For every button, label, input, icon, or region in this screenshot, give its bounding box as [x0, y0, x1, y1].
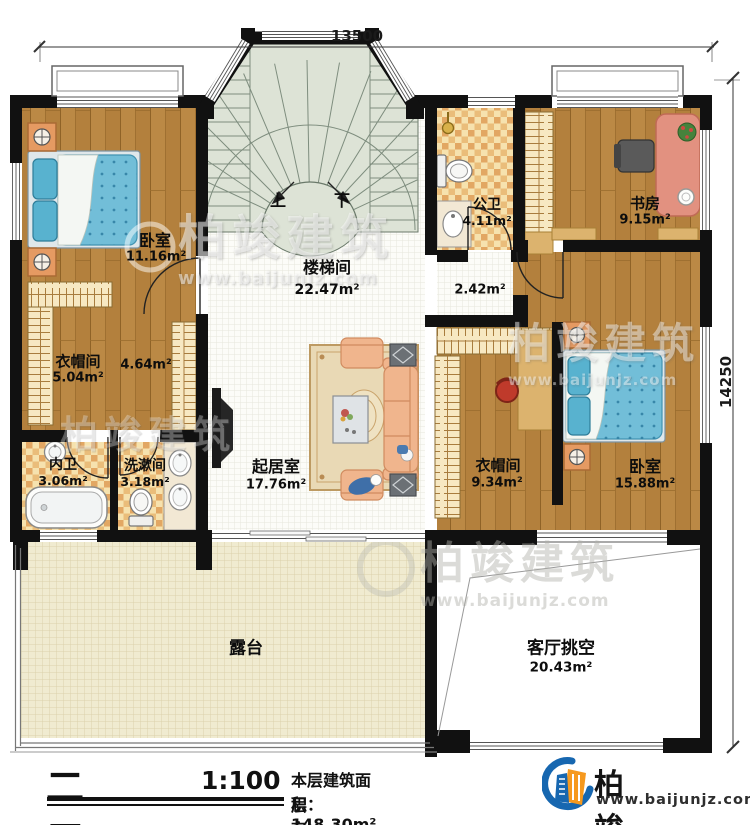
room-label-bath-inner: 内卫 [49, 458, 77, 472]
dimension-right: 14250 [717, 356, 735, 408]
sliding-door [212, 530, 425, 542]
room-area-washroom: 3.18m² [120, 476, 169, 489]
page-title: 二层平面图 [46, 756, 87, 825]
toilet-icon [129, 489, 153, 526]
bed-left [28, 151, 140, 248]
brand-website: www.baijunjz.com [596, 792, 750, 808]
room-area-study: 9.15m² [619, 214, 670, 227]
room-label-bedroom-right: 卧室 [629, 459, 661, 475]
room-area-cloak-left: 5.04m² [52, 372, 103, 385]
room-label-living: 起居室 [252, 459, 300, 475]
room-area-cloak-left2: 4.64m² [120, 359, 171, 372]
title-underline [47, 797, 284, 801]
room-area-living: 17.76m² [246, 479, 306, 492]
room-area-bath-inner: 3.06m² [38, 475, 87, 488]
room-area-cloak-right: 9.34m² [471, 477, 522, 490]
bathtub-icon [26, 487, 107, 528]
room-label-cloak-left: 衣帽间 [55, 355, 100, 370]
bay-window [552, 66, 683, 108]
bay-window [52, 66, 183, 108]
drawing-scale: 1:100 [201, 766, 281, 795]
floorplan-drawing [0, 0, 750, 825]
room-label-bath-public: 公卫 [473, 198, 501, 212]
room-area-bedroom-right: 15.88m² [615, 478, 675, 491]
floor-height-text: 层高：3.3m [291, 792, 336, 825]
chair-icon [496, 379, 518, 402]
room-label-terrace: 露台 [229, 641, 263, 658]
room-label-stairwell: 楼梯间 [303, 260, 351, 276]
room-area-stairwell: 22.47m² [294, 283, 359, 297]
title-underline [47, 804, 284, 806]
room-label-bedroom-left: 卧室 [139, 233, 171, 249]
room-area-void: 20.43m² [530, 661, 593, 675]
room-area-bath-public: 4.11m² [462, 215, 511, 228]
room-label-void: 客厅挑空 [527, 641, 595, 658]
stair-down-label: 下 [334, 193, 350, 209]
dimension-top: 13500 [331, 27, 383, 45]
stair-up-label: 上 [270, 193, 286, 209]
coffee-table [333, 396, 368, 443]
room-label-study: 书房 [630, 197, 660, 212]
room-label-washroom: 洗漱间 [124, 459, 166, 473]
brand-logo-icon [542, 757, 594, 815]
room-label-cloak-right: 衣帽间 [475, 459, 520, 474]
room-area-corridor: 2.42m² [454, 284, 505, 297]
room-area-bedroom-left: 11.16m² [126, 251, 186, 264]
floorplan-page: 柏竣建筑 www.baijunjz.com 柏竣建筑 www.baijunjz.… [0, 0, 750, 825]
bed-right [563, 350, 665, 442]
